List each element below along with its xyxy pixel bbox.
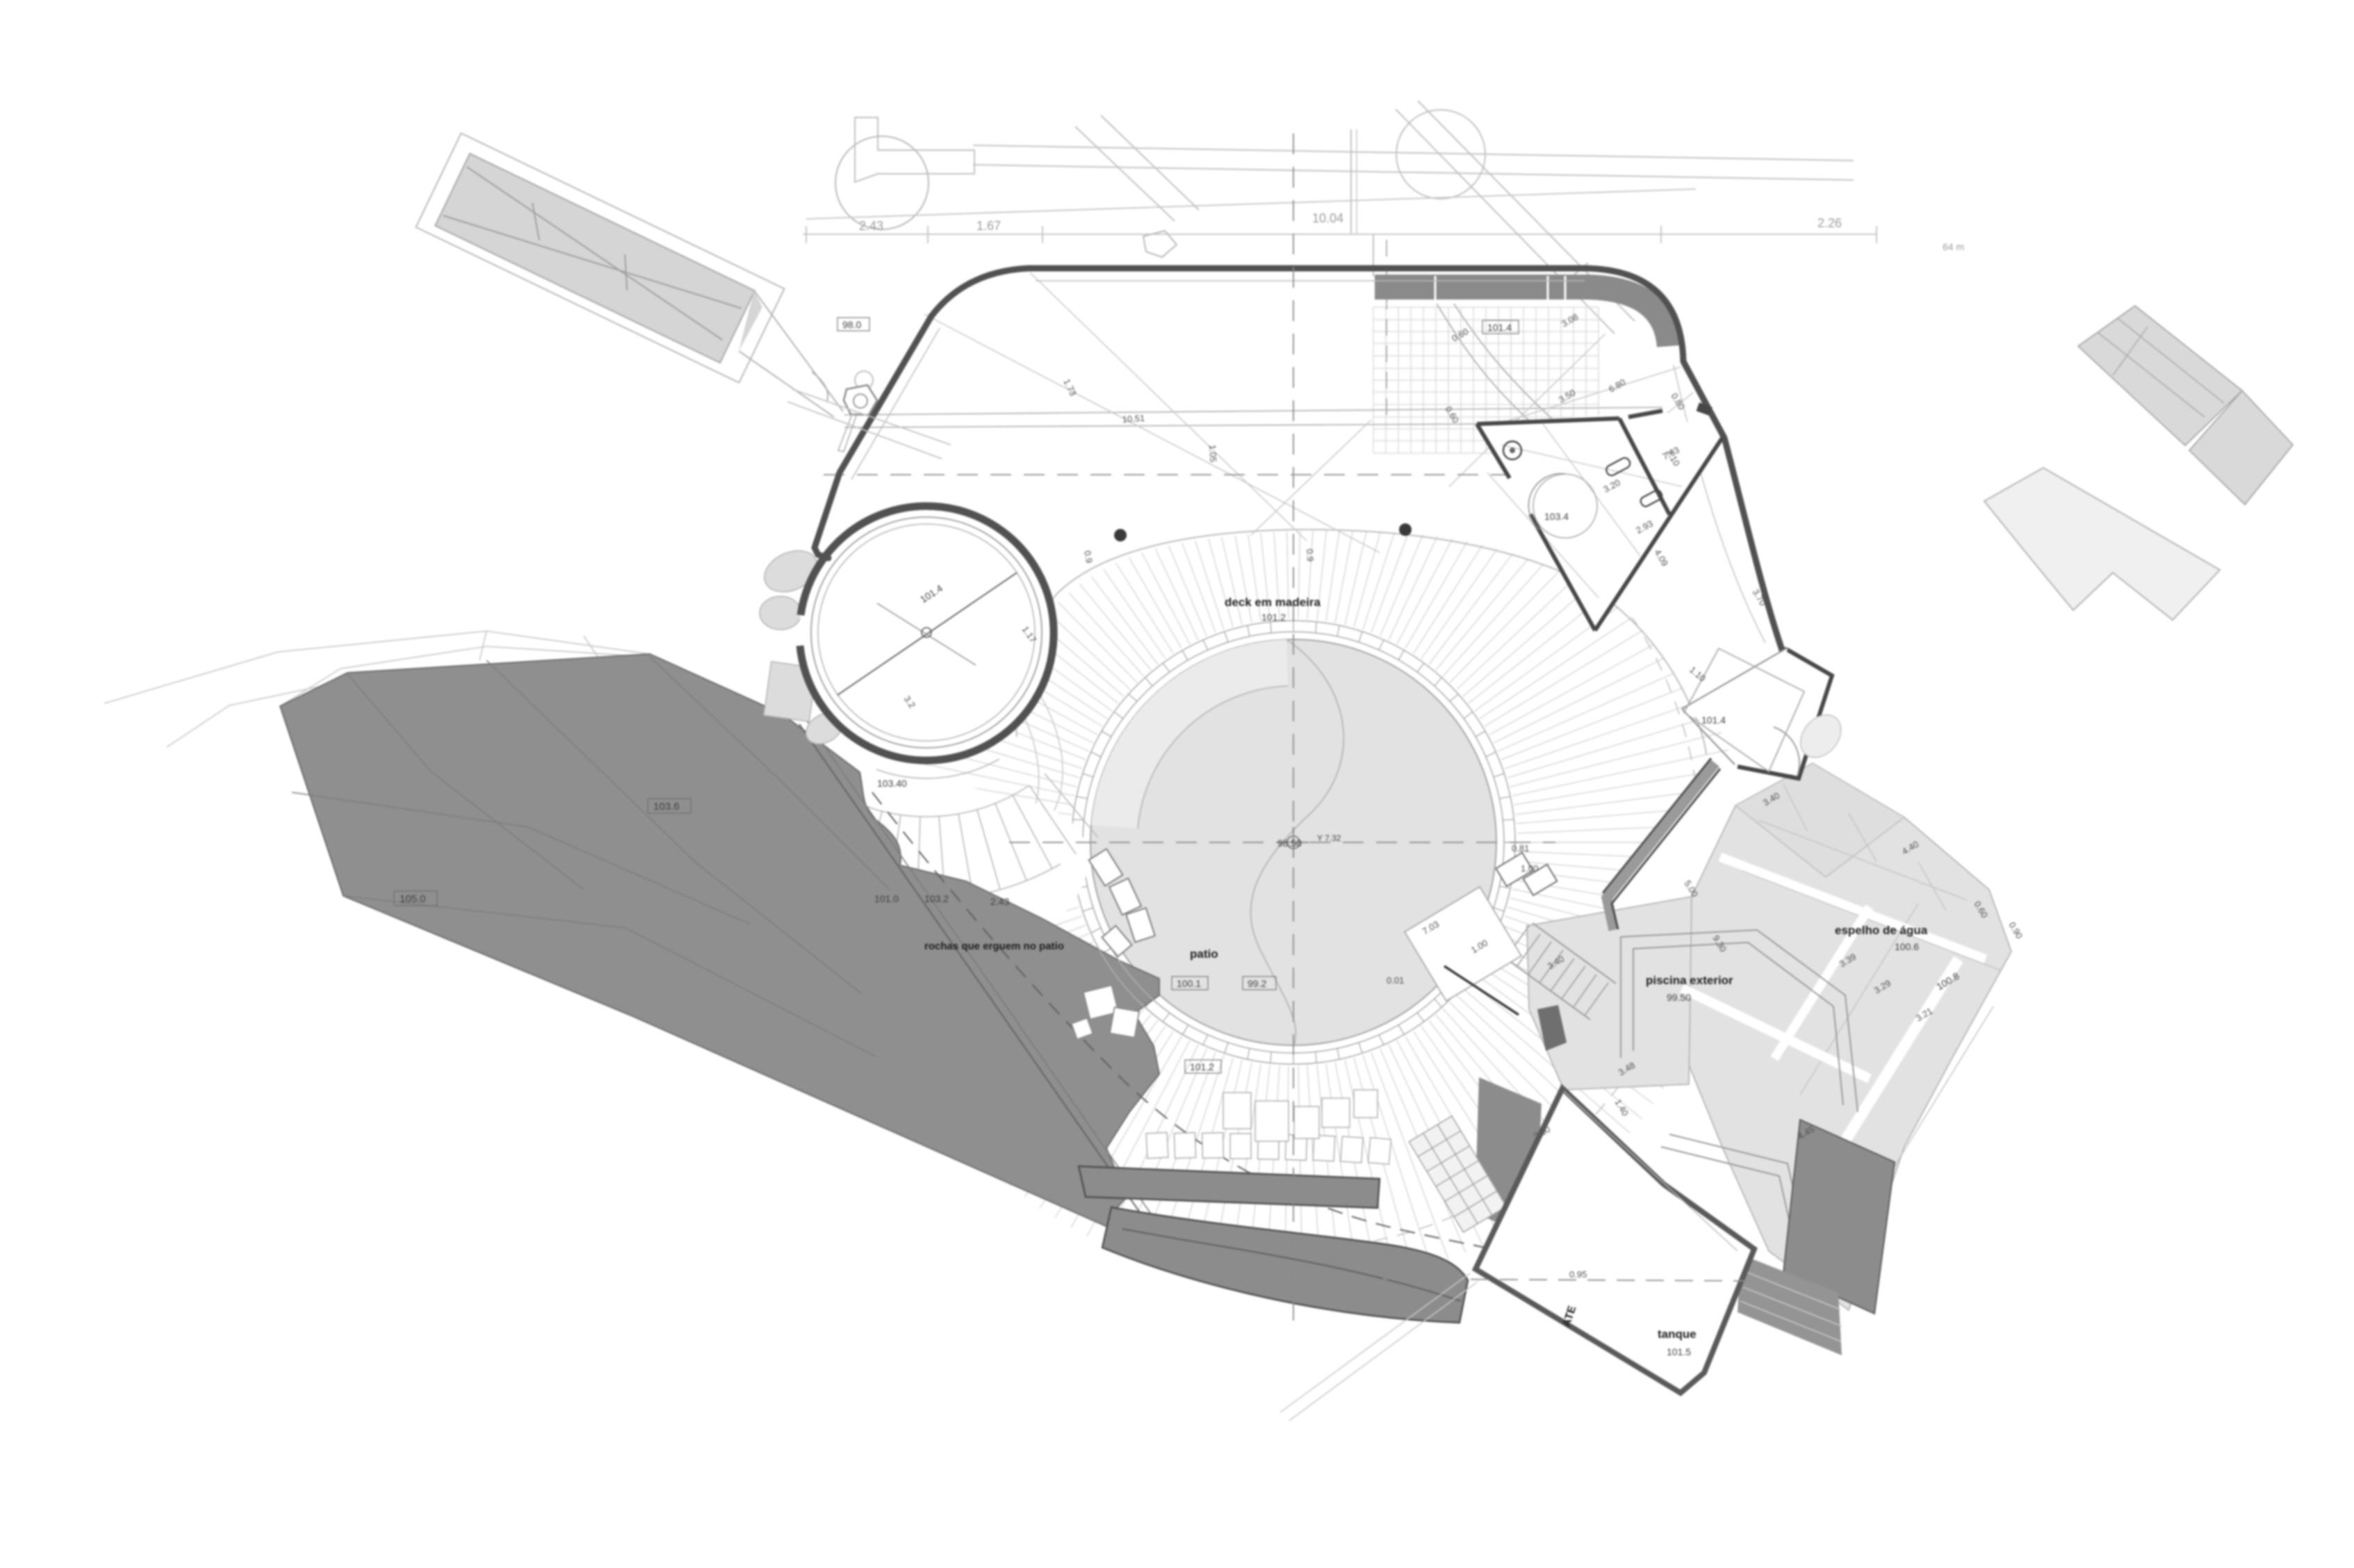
svg-text:patio: patio: [1190, 947, 1218, 961]
svg-text:101.0: 101.0: [874, 893, 899, 904]
svg-text:101.4: 101.4: [1701, 714, 1726, 726]
svg-text:101.2: 101.2: [1261, 612, 1286, 623]
svg-text:piscina exterior: piscina exterior: [1646, 974, 1733, 987]
svg-text:1.05: 1.05: [1207, 444, 1218, 462]
svg-text:0.9: 0.9: [1082, 550, 1095, 564]
svg-text:100.1: 100.1: [1177, 978, 1201, 989]
svg-text:10.51: 10.51: [1122, 413, 1145, 425]
svg-text:deck em madeira: deck em madeira: [1225, 596, 1321, 609]
svg-text:espelho de água: espelho de água: [1835, 924, 1928, 937]
svg-text:2.43: 2.43: [859, 219, 883, 233]
svg-text:Y 7.32: Y 7.32: [1317, 833, 1341, 843]
svg-text:2.26: 2.26: [1817, 216, 1842, 230]
svg-text:0.81: 0.81: [1512, 843, 1529, 854]
svg-text:105.0: 105.0: [400, 893, 426, 905]
svg-text:tanque: tanque: [1658, 1328, 1697, 1341]
svg-text:103.4: 103.4: [1544, 511, 1569, 522]
svg-text:rochas que erguem no patio: rochas que erguem no patio: [924, 940, 1064, 952]
svg-text:1.67: 1.67: [976, 219, 1001, 233]
svg-text:99.50: 99.50: [1667, 992, 1691, 1003]
svg-text:101.2: 101.2: [1190, 1061, 1214, 1072]
svg-text:1.00: 1.00: [1521, 863, 1538, 874]
svg-text:0.01: 0.01: [1387, 975, 1404, 986]
svg-text:101.4: 101.4: [1487, 322, 1512, 333]
svg-text:100.6: 100.6: [1895, 941, 1919, 952]
svg-text:98.50: 98.50: [1277, 838, 1302, 849]
svg-text:10.04: 10.04: [1312, 211, 1343, 225]
svg-text:2.43: 2.43: [990, 896, 1009, 907]
svg-text:99.2: 99.2: [1248, 978, 1266, 989]
svg-text:103.40: 103.40: [877, 778, 907, 789]
svg-text:64 m: 64 m: [1943, 241, 1964, 252]
svg-text:0.9: 0.9: [1305, 548, 1316, 562]
svg-text:0.95: 0.95: [1569, 1269, 1587, 1280]
svg-text:103.2: 103.2: [924, 893, 949, 904]
svg-text:101.5: 101.5: [1667, 1346, 1691, 1357]
svg-text:98.0: 98.0: [842, 319, 861, 330]
svg-text:103.6: 103.6: [653, 801, 680, 812]
